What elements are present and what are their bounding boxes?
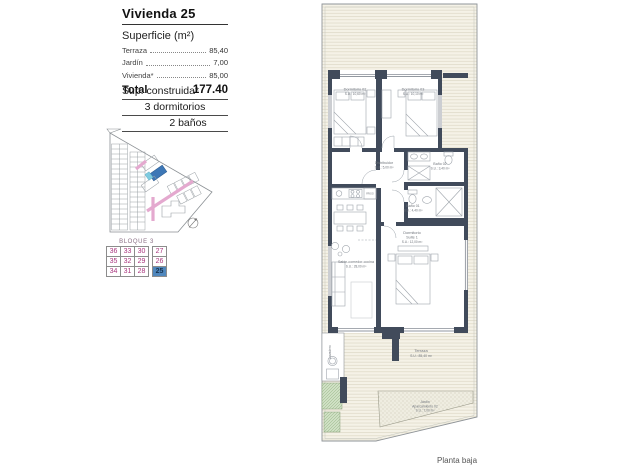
room-area: S.U.: 10,10 m² [403, 92, 424, 96]
site-boundary [110, 133, 212, 232]
surface-heading: Superficie (m²) [122, 30, 228, 42]
built-surface-line: Sup. construida* [122, 84, 228, 100]
room-label: Salón-comedor-cocina [338, 260, 374, 264]
unit-cell[interactable]: 26 [153, 257, 167, 267]
surface-value: 85,40 [209, 46, 228, 55]
unit-info-block: Vivienda 25 Superficie (m²) Terraza 85,4… [122, 6, 228, 96]
floor-caption: Planta baja [437, 456, 477, 465]
unit-cell[interactable]: 27 [153, 247, 167, 257]
surface-value: 85,00 [209, 71, 228, 80]
dotted-leader [157, 77, 207, 78]
room-label: Dormitorio 03 [402, 88, 425, 92]
surface-row: Vivienda* 85,00 [122, 71, 228, 80]
unit-cell[interactable]: 35 [107, 257, 121, 267]
unit-cell[interactable]: 28 [135, 267, 149, 277]
bedrooms-line: 3 dormitorios [122, 100, 228, 116]
room-area: S.U.: 7,00 m² [416, 409, 435, 413]
unit-cell[interactable]: 33 [121, 247, 135, 257]
room-label: Dormitorio 02 [344, 88, 367, 92]
unit-cell[interactable]: 31 [121, 267, 135, 277]
room-label: Dormitorio [403, 231, 421, 235]
unit-cell[interactable]: 34 [107, 267, 121, 277]
surface-value: 7,00 [213, 58, 228, 67]
unit-cell[interactable]: 36 [107, 247, 121, 257]
appliance-label: FRIGO [366, 193, 374, 196]
bloque-title: BLOQUE 3 [106, 239, 167, 245]
upper-rooms-floor [328, 70, 442, 150]
dotted-leader [150, 52, 206, 53]
unit-floorplan: Dormitorio 02 S.U.: 10,60 m² Dormitorio … [318, 0, 480, 476]
surface-row: Jardín 7,00 [122, 58, 228, 67]
dotted-leader [146, 65, 211, 66]
unit-cell[interactable]: 29 [135, 257, 149, 267]
room-area: S.U.: 85,40 m² [410, 354, 433, 358]
room-area: S.U.: 28,00 m² [346, 265, 367, 269]
room-label: Baño 02 [433, 162, 446, 166]
floorplan-sheet: Vivienda 25 Superficie (m²) Terraza 85,4… [0, 0, 629, 476]
lower-rooms-floor [328, 148, 468, 333]
planter [324, 412, 340, 432]
room-label: Distribuidor [375, 161, 394, 165]
room-label: Suite 1 [406, 236, 418, 240]
room-label: Baño 01 [406, 204, 419, 208]
surface-label: Vivienda* [122, 71, 154, 80]
room-area: S.U.: 5,00 m² [375, 166, 394, 170]
laundry-closet [322, 333, 344, 381]
unit-cell-selected[interactable]: 25 [153, 267, 167, 277]
room-area: S.U.: 4,40 m² [404, 209, 423, 213]
unit-cell[interactable]: 32 [121, 257, 135, 267]
site-corner-flag [107, 129, 121, 133]
room-area: S.U.: 3,40 m² [431, 167, 450, 171]
room-area: S.U.: 10,60 m² [345, 92, 366, 96]
compass-icon [188, 218, 198, 228]
room-area: S.U.: 12,00 m² [402, 240, 423, 244]
surface-label: Jardín [122, 58, 143, 67]
room-label: Terraza [414, 348, 428, 353]
planter [322, 383, 342, 409]
unit-cell[interactable]: 30 [135, 247, 149, 257]
room-label: Lavadero [328, 345, 332, 359]
surface-label: Terraza [122, 46, 147, 55]
site-key-plan [100, 118, 222, 240]
bloque-table: BLOQUE 3 36 33 30 27 35 32 29 26 34 31 2… [106, 239, 167, 277]
unit-title: Vivienda 25 [122, 6, 228, 25]
surface-row: Terraza 85,40 [122, 46, 228, 55]
